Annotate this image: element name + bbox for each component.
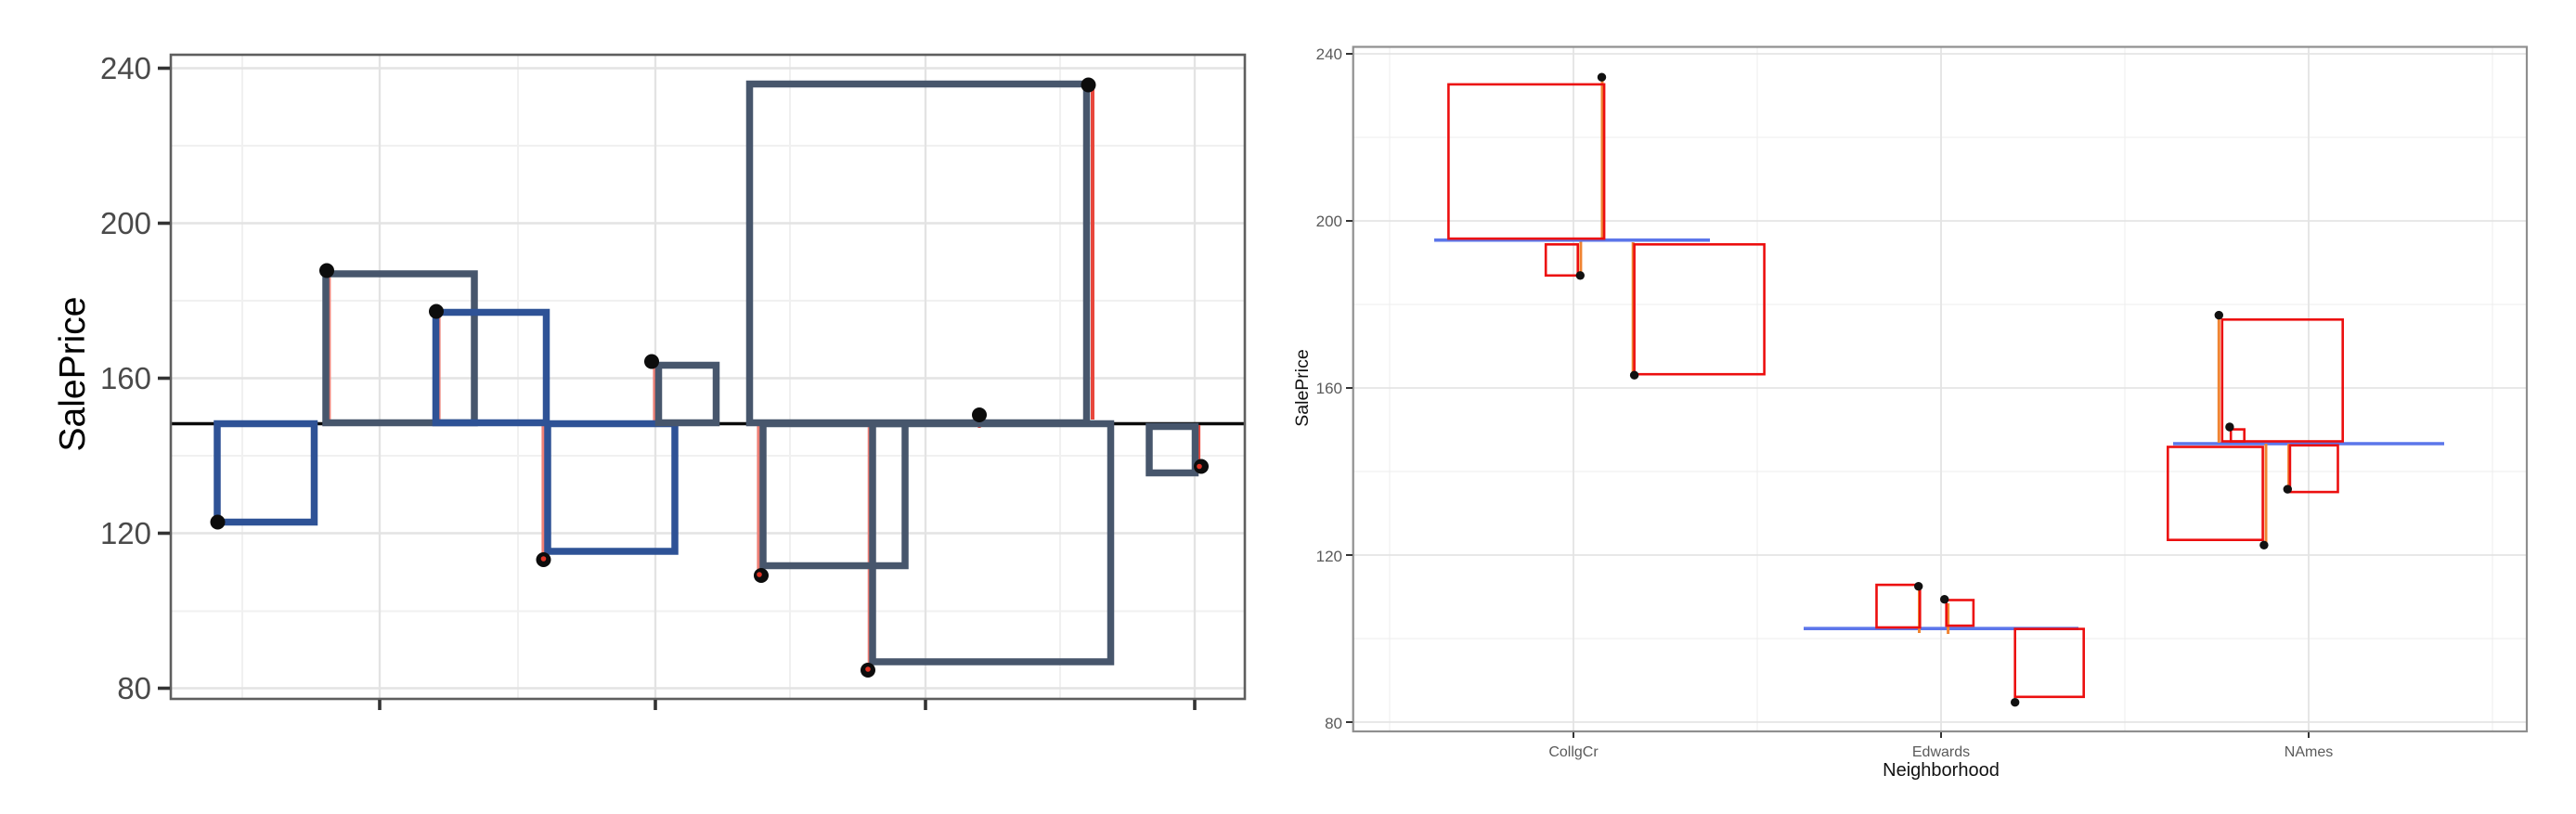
svg-text:NAmes: NAmes: [2285, 744, 2333, 760]
svg-text:SalePrice: SalePrice: [1292, 349, 1313, 426]
svg-text:Neighborhood: Neighborhood: [1883, 760, 2000, 781]
svg-text:120: 120: [100, 516, 151, 550]
svg-text:160: 160: [100, 361, 151, 395]
svg-text:160: 160: [1316, 380, 1342, 397]
svg-text:CollgCr: CollgCr: [1548, 744, 1599, 760]
svg-text:Edwards: Edwards: [1912, 744, 1970, 760]
svg-text:200: 200: [1316, 213, 1342, 230]
svg-text:200: 200: [100, 206, 151, 240]
svg-text:240: 240: [100, 51, 151, 85]
svg-text:80: 80: [117, 671, 151, 705]
svg-text:240: 240: [1316, 45, 1342, 63]
svg-text:SalePrice: SalePrice: [53, 297, 93, 452]
svg-text:80: 80: [1325, 715, 1342, 732]
svg-text:120: 120: [1316, 548, 1342, 565]
